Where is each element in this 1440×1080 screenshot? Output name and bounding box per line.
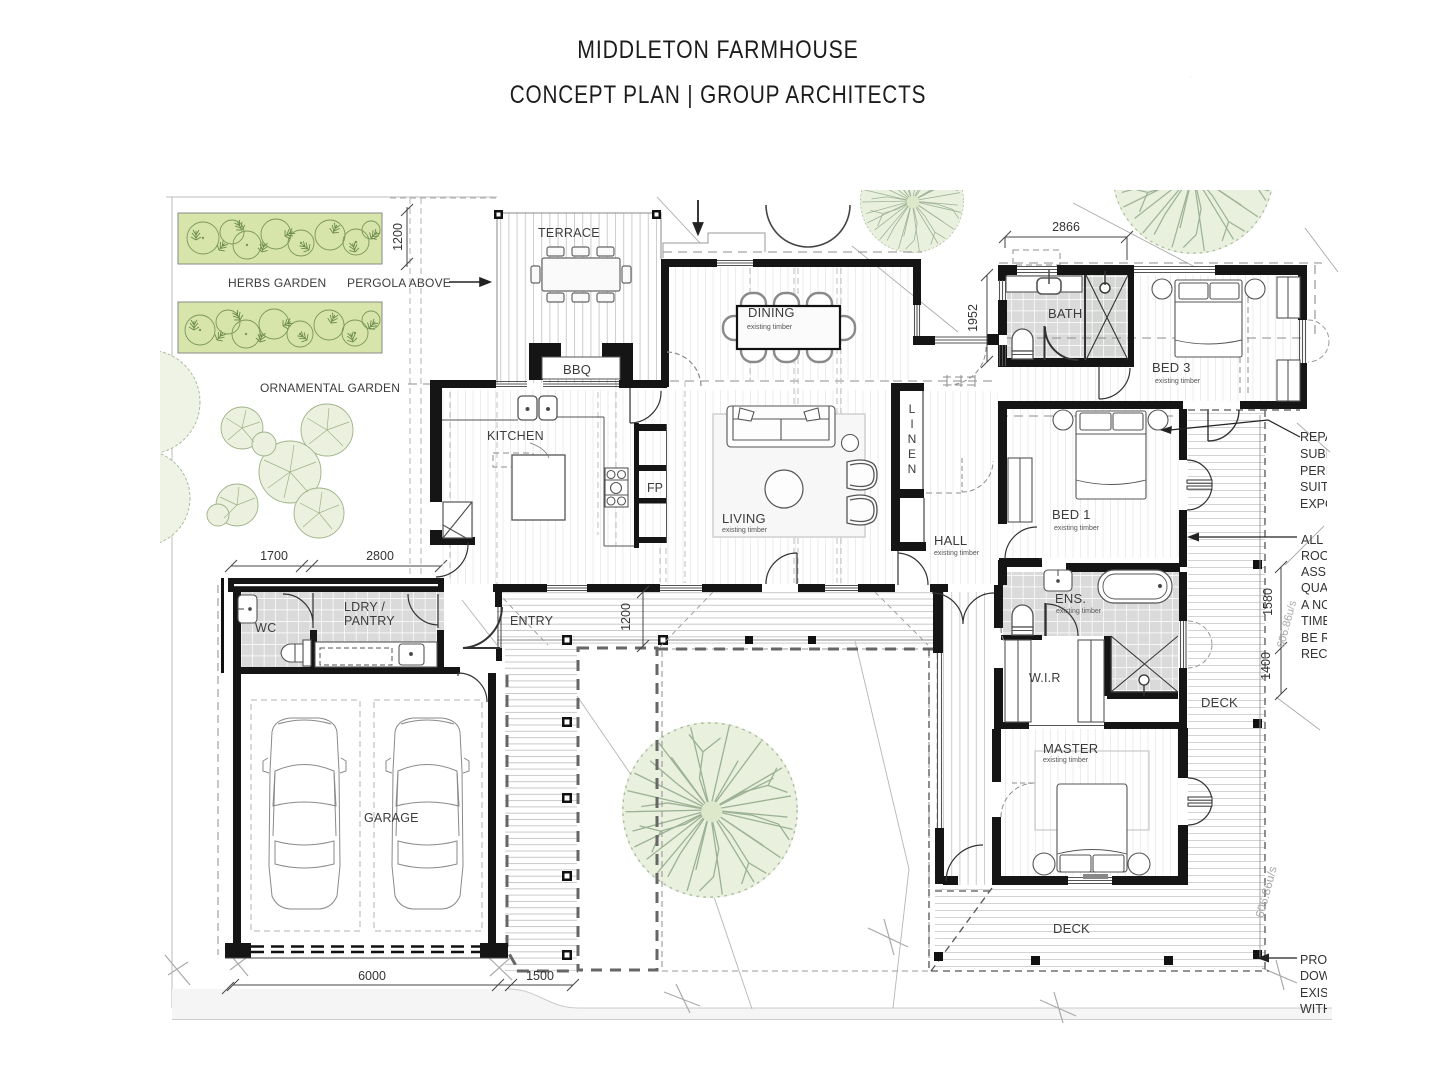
svg-text:DECK: DECK — [1053, 921, 1090, 936]
svg-text:BBQ: BBQ — [563, 362, 591, 377]
svg-text:BED 3: BED 3 — [1152, 360, 1191, 375]
svg-text:L: L — [909, 402, 916, 416]
svg-text:TIMBEF: TIMBEF — [1301, 614, 1347, 628]
svg-text:EXPOS: EXPOS — [1300, 497, 1343, 511]
svg-text:BE REC: BE REC — [1301, 631, 1348, 645]
svg-text:E: E — [908, 447, 916, 461]
svg-text:I: I — [910, 417, 913, 431]
svg-text:1952: 1952 — [966, 304, 980, 332]
svg-text:1580: 1580 — [1261, 588, 1275, 616]
svg-text:N: N — [908, 462, 917, 476]
svg-text:LDRY /: LDRY / — [344, 600, 385, 614]
svg-text:ENTRY: ENTRY — [510, 614, 554, 628]
svg-text:existing timber: existing timber — [1155, 378, 1201, 385]
svg-text:existing timber: existing timber — [747, 324, 793, 331]
svg-text:QUALIF: QUALIF — [1301, 581, 1347, 595]
svg-text:1200: 1200 — [619, 603, 633, 631]
svg-text:HERBS GARDEN: HERBS GARDEN — [228, 276, 326, 290]
svg-text:6000: 6000 — [358, 969, 386, 983]
svg-text:DOWN: DOWN — [1300, 969, 1340, 983]
svg-text:DINING: DINING — [748, 305, 795, 320]
svg-text:SUITAB: SUITAB — [1300, 480, 1344, 494]
svg-text:WC: WC — [255, 621, 277, 635]
svg-text:606.86u/s: 606.86u/s — [1275, 599, 1299, 649]
svg-text:HALL: HALL — [934, 533, 967, 548]
svg-text:PROVI: PROVI — [1300, 953, 1339, 967]
svg-text:ENS.: ENS. — [1055, 591, 1086, 606]
svg-text:ALL EX: ALL EX — [1301, 533, 1344, 547]
svg-text:W.I.R: W.I.R — [1029, 671, 1061, 685]
svg-text:A NOMI: A NOMI — [1301, 598, 1345, 612]
svg-text:1500: 1500 — [526, 969, 554, 983]
svg-text:existing timber: existing timber — [722, 527, 768, 534]
svg-text:TERRACE: TERRACE — [538, 226, 600, 240]
svg-text:BED 1: BED 1 — [1052, 507, 1091, 522]
svg-text:1700: 1700 — [260, 549, 288, 563]
svg-text:existing timber: existing timber — [934, 550, 980, 557]
svg-text:WITH S: WITH S — [1300, 1002, 1344, 1016]
svg-text:ORNAMENTAL GARDEN: ORNAMENTAL GARDEN — [260, 381, 400, 395]
svg-text:existing timber: existing timber — [1043, 757, 1089, 764]
svg-text:GARAGE: GARAGE — [364, 811, 419, 825]
svg-text:EXISTI: EXISTI — [1300, 986, 1340, 1000]
svg-text:BATH: BATH — [1048, 306, 1083, 321]
svg-text:RECOM: RECOM — [1301, 647, 1348, 661]
svg-text:SUBFLO: SUBFLO — [1300, 447, 1350, 461]
svg-text:PANTRY: PANTRY — [344, 614, 395, 628]
svg-text:1400: 1400 — [1259, 652, 1273, 680]
svg-text:REPAIR: REPAIR — [1300, 430, 1346, 444]
svg-text:2800: 2800 — [366, 549, 394, 563]
svg-text:PERGOLA ABOVE: PERGOLA ABOVE — [347, 276, 451, 290]
svg-text:ASSES: ASSES — [1301, 565, 1343, 579]
svg-text:PERIME: PERIME — [1300, 464, 1348, 478]
svg-text:existing timber: existing timber — [1054, 525, 1100, 532]
svg-text:ROOF S: ROOF S — [1301, 549, 1349, 563]
svg-text:existing timber: existing timber — [1056, 608, 1102, 615]
svg-text:N: N — [908, 432, 917, 446]
svg-text:KITCHEN: KITCHEN — [487, 429, 544, 443]
svg-text:LIVING: LIVING — [722, 511, 766, 526]
svg-text:2866: 2866 — [1052, 220, 1080, 234]
svg-text:FP: FP — [647, 481, 663, 495]
svg-text:1200: 1200 — [391, 223, 405, 251]
svg-text:MASTER: MASTER — [1043, 741, 1098, 756]
svg-text:DECK: DECK — [1201, 695, 1238, 710]
